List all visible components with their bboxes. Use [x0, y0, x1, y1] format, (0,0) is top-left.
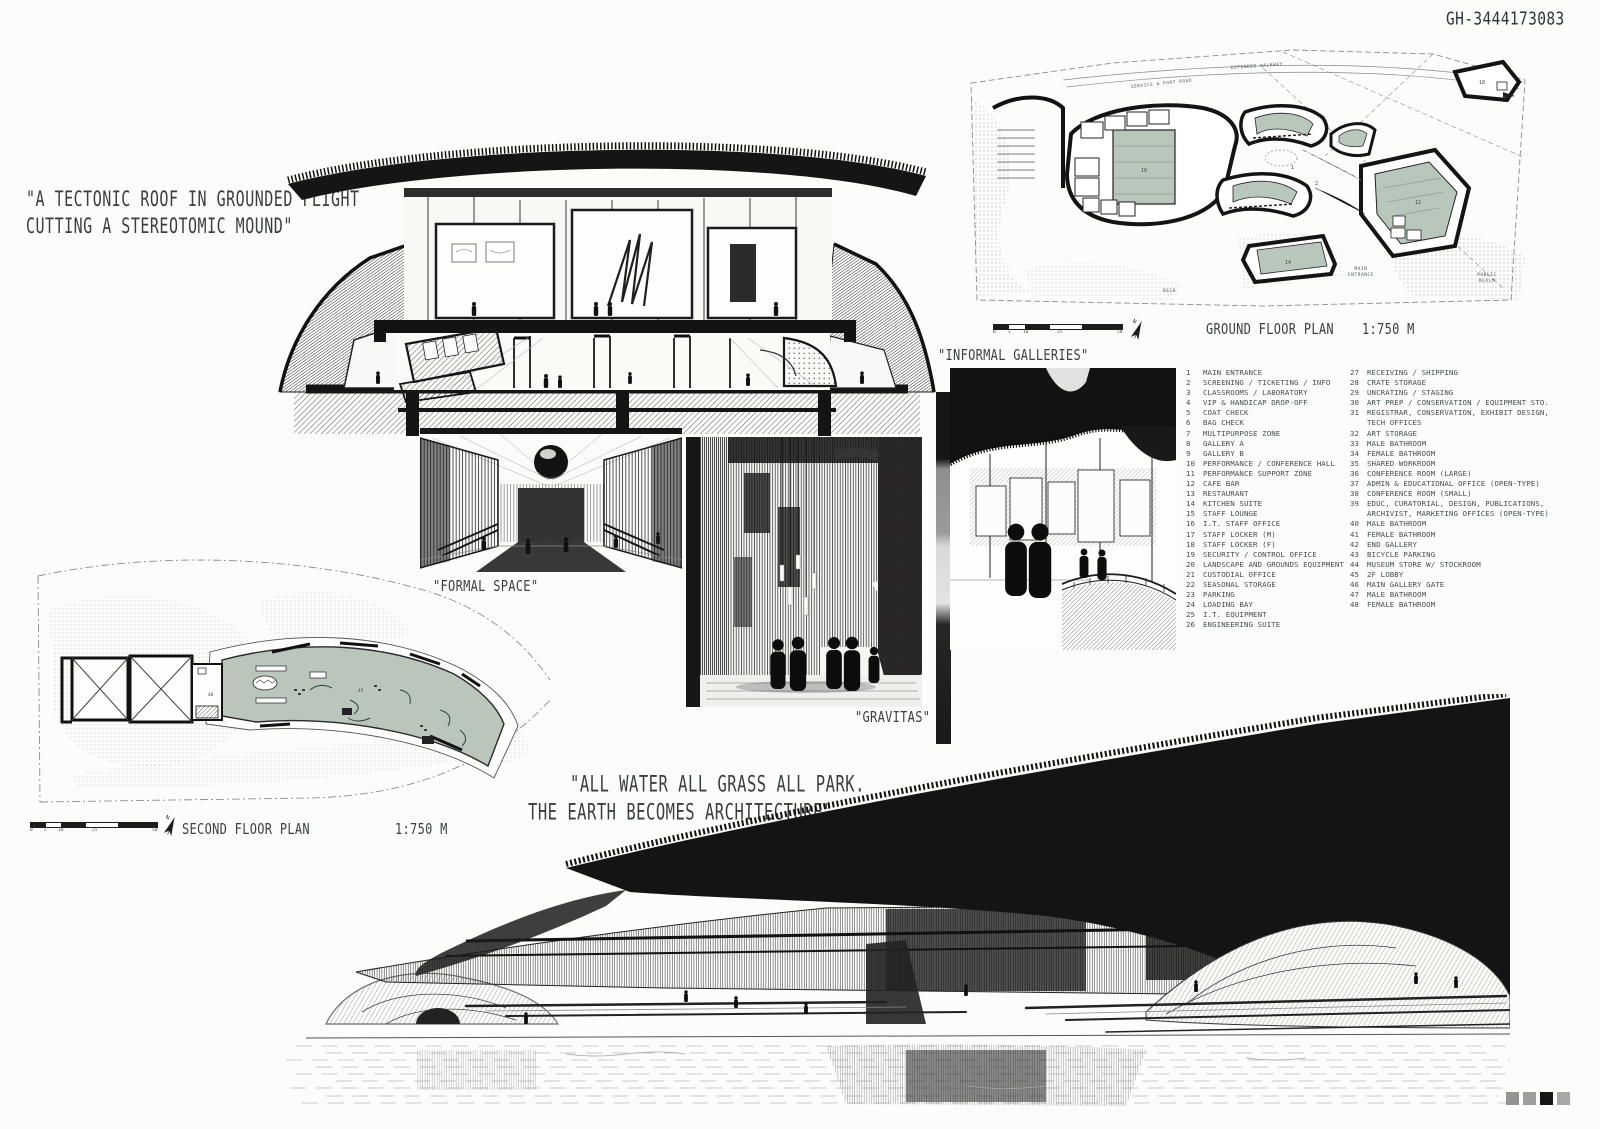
- legend-item: 4VIP & HANDICAP DROP-OFF: [1186, 398, 1348, 408]
- svg-text:46: 46: [208, 692, 214, 698]
- svg-text:10: 10: [1141, 168, 1147, 174]
- left-streak-wall: [700, 437, 728, 707]
- legend-item: 33MALE BATHROOM: [1350, 439, 1550, 449]
- skylight-boxes: [62, 656, 222, 722]
- legend-item: 1MAIN ENTRANCE: [1186, 368, 1348, 378]
- legend-item: 39EDUC, CURATORIAL, DESIGN, PUBLICATIONS…: [1350, 499, 1550, 519]
- legend-item: 9GALLERY B: [1186, 449, 1348, 459]
- calibration-square: [1506, 1092, 1519, 1105]
- scalebar-tick: 0: [993, 330, 996, 335]
- ground-plan-scale: 1:750 M: [1362, 320, 1415, 338]
- legend-item: 21CUSTODIAL OFFICE: [1186, 570, 1348, 580]
- floor-slab: [380, 320, 848, 333]
- legend-item: 11PERFORMANCE SUPPORT ZONE: [1186, 469, 1348, 479]
- north-arrow-icon: N: [159, 812, 183, 840]
- ground-plan-scalebar: 05102550: [993, 324, 1123, 337]
- scalebar-tick: 10: [58, 828, 63, 833]
- waterfront-perspective-sketch: [266, 694, 1510, 1110]
- scalebar-tick: 25: [1057, 330, 1062, 335]
- south-gallery-arc: [1217, 174, 1311, 216]
- legend-item: 25I.T. EQUIPMENT: [1186, 610, 1348, 620]
- svg-text:N: N: [1132, 319, 1137, 326]
- legend-item: 31REGISTRAR, CONSERVATION, EXHIBIT DESIG…: [1350, 408, 1550, 428]
- legend-item: 13RESTAURANT: [1186, 489, 1348, 499]
- legend-item: 3CLASSROOMS / LABORATORY: [1186, 388, 1348, 398]
- legend-item: 24LOADING BAY: [1186, 600, 1348, 610]
- scalebar-tick: 0: [30, 828, 33, 833]
- legend-item: 26ENGINEERING SUITE: [1186, 620, 1348, 630]
- entry-route: [1303, 150, 1365, 214]
- scalebar-tick: 50: [152, 828, 157, 833]
- svg-text:PUBLIC: PUBLIC: [1477, 272, 1496, 278]
- legend-item: 48FEMALE BATHROOM: [1350, 600, 1550, 610]
- legend-item: 20LANDSCAPE AND GROUNDS EQUIPMENT: [1186, 560, 1348, 570]
- plaza-oval: [1265, 150, 1297, 166]
- presentation-board: GH-3444173083 "A TECTONIC ROOF IN GROUND…: [0, 0, 1600, 1129]
- right-mound: [826, 244, 934, 392]
- legend-item: 23PARKING: [1186, 590, 1348, 600]
- west-cluster: 10: [1067, 105, 1237, 224]
- left-wall-edge: [686, 437, 700, 707]
- legend-item: 32ART STORAGE: [1350, 429, 1550, 439]
- scalebar-tick: 10: [1023, 330, 1028, 335]
- legend-item: 41FEMALE BATHROOM: [1350, 530, 1550, 540]
- sheet-id-code: GH-3444173083: [1446, 10, 1565, 29]
- informal-galleries-caption: "INFORMAL GALLERIES": [938, 346, 1089, 364]
- water: [286, 1034, 1510, 1106]
- legend-item: 6BAG CHECK: [1186, 418, 1348, 428]
- northeast-pod: [1331, 124, 1375, 156]
- south-pavilion: 14: [1239, 233, 1345, 288]
- svg-text:EXTENDED WALKWAY: EXTENDED WALKWAY: [1231, 61, 1283, 71]
- calibration-square: [1540, 1092, 1553, 1105]
- legend-item: 19SECURITY / CONTROL OFFICE: [1186, 550, 1348, 560]
- calibration-marks: [1506, 1092, 1570, 1105]
- legend-item: 16I.T. STAFF OFFICE: [1186, 519, 1348, 529]
- ground-floor-plan: 10 12 14: [963, 38, 1535, 316]
- calibration-square: [1557, 1092, 1570, 1105]
- svg-text:ENTRANCE: ENTRANCE: [1348, 272, 1374, 278]
- legend-item: 22SEASONAL STORAGE: [1186, 580, 1348, 590]
- legend-item: 17STAFF LOCKER (M): [1186, 530, 1348, 540]
- scalebar-tick: 5: [1008, 330, 1011, 335]
- legend-item: 10PERFORMANCE / CONFERENCE HALL: [1186, 459, 1348, 469]
- right-rough-wall: [878, 437, 922, 707]
- legend-column-1: 1MAIN ENTRANCE2SCREENING / TICKETING / I…: [1186, 368, 1348, 630]
- scalebar-tick: 25: [92, 828, 97, 833]
- svg-text:14: 14: [1285, 260, 1291, 266]
- legend-item: 28CRATE STORAGE: [1350, 378, 1550, 388]
- north-gallery-arc: [1241, 106, 1327, 146]
- gravitas-sketch: [686, 437, 922, 707]
- legend-item: 42END GALLERY: [1350, 540, 1550, 550]
- northeast-annex: 18: [1455, 62, 1519, 100]
- legend-item: 34FEMALE BATHROOM: [1350, 449, 1550, 459]
- svg-text:MAIN: MAIN: [1355, 266, 1368, 272]
- legend-item: 7MULTIPURPOSE ZONE: [1186, 429, 1348, 439]
- scalebar-tick: 5: [44, 828, 47, 833]
- legend-item: 29UNCRATING / STAGING: [1350, 388, 1550, 398]
- second-plan-scalebar: 05102550: [30, 822, 158, 835]
- shore-stipple-left: [971, 98, 1033, 296]
- svg-text:DECK: DECK: [1163, 288, 1176, 294]
- legend-item: 15STAFF LOUNGE: [1186, 509, 1348, 519]
- svg-text:2: 2: [1315, 181, 1318, 187]
- svg-text:N: N: [165, 815, 170, 822]
- legend-item: 18STAFF LOCKER (F): [1186, 540, 1348, 550]
- legend-item: 44MUSEUM STORE W/ STOCKROOM: [1350, 560, 1550, 570]
- legend-item: 38CONFERENCE ROOM (SMALL): [1350, 489, 1550, 499]
- legend-item: 12CAFE BAR: [1186, 479, 1348, 489]
- margin-sketch-strip: [936, 392, 951, 744]
- legend-item: 37ADMIN & EDUCATIONAL OFFICE (OPEN-TYPE): [1350, 479, 1550, 489]
- informal-galleries-sketch: [950, 368, 1176, 650]
- east-hall: 12: [1361, 150, 1469, 256]
- svg-text:18: 18: [1479, 80, 1485, 86]
- legend-item: 36CONFERENCE ROOM (LARGE): [1350, 469, 1550, 479]
- legend-item: 2SCREENING / TICKETING / INFO: [1186, 378, 1348, 388]
- legend-item: 30ART PREP / CONSERVATION / EQUIPMENT ST…: [1350, 398, 1550, 408]
- svg-text:REALM: REALM: [1479, 278, 1495, 284]
- svg-text:12: 12: [1415, 200, 1421, 206]
- legend-item: 46MAIN GALLERY GATE: [1350, 580, 1550, 590]
- calibration-square: [1523, 1092, 1536, 1105]
- scalebar-tick: 50: [1117, 330, 1122, 335]
- legend-item: 43BICYCLE PARKING: [1350, 550, 1550, 560]
- right-wall: [604, 438, 682, 568]
- legend-item: 452F LOBBY: [1350, 570, 1550, 580]
- legend-item: 27RECEIVING / SHIPPING: [1350, 368, 1550, 378]
- legend-item: 8GALLERY A: [1186, 439, 1348, 449]
- legend-column-2: 27RECEIVING / SHIPPING28CRATE STORAGE29U…: [1350, 368, 1550, 610]
- section-perspective-sketch: [278, 92, 936, 438]
- north-arrow-icon: N: [1126, 316, 1150, 344]
- legend-item: 47MALE BATHROOM: [1350, 590, 1550, 600]
- legend-item: 40MALE BATHROOM: [1350, 519, 1550, 529]
- legend-item: 5COAT CHECK: [1186, 408, 1348, 418]
- legend-item: 35SHARED WORKROOM: [1350, 459, 1550, 469]
- svg-text:1: 1: [1291, 165, 1294, 171]
- ground-plan-title: GROUND FLOOR PLAN: [1206, 320, 1334, 338]
- legend-item: 14KITCHEN SUITE: [1186, 499, 1348, 509]
